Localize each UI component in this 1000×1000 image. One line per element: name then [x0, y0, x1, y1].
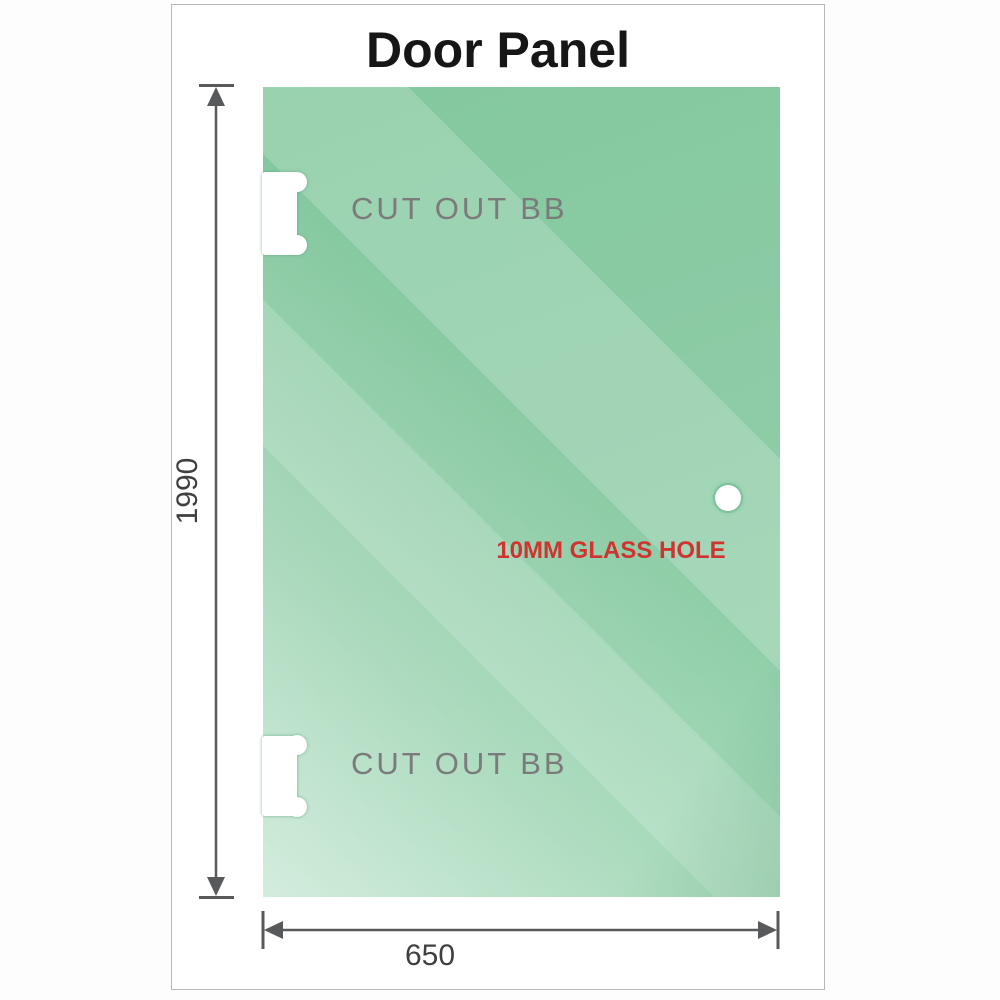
cutout-top-icon	[262, 171, 310, 257]
glass-hole-icon	[715, 485, 741, 511]
width-dimension-label: 650	[405, 939, 455, 973]
diagram-stage: Door Panel CUT OUT BB CUT OUT B	[0, 0, 1000, 1000]
glass-hole-label: 10MM GLASS HOLE	[496, 537, 725, 565]
height-dimension-label: 1990	[171, 458, 205, 525]
cutout-top-label: CUT OUT BB	[351, 191, 568, 227]
cutout-bottom-icon	[262, 735, 310, 821]
diagram-card: Door Panel CUT OUT BB CUT OUT B	[171, 4, 825, 990]
page-title: Door Panel	[172, 21, 824, 79]
door-panel-glass: CUT OUT BB CUT OUT BB 10MM GLASS HOLE	[263, 87, 780, 897]
cutout-bottom-label: CUT OUT BB	[351, 746, 568, 782]
